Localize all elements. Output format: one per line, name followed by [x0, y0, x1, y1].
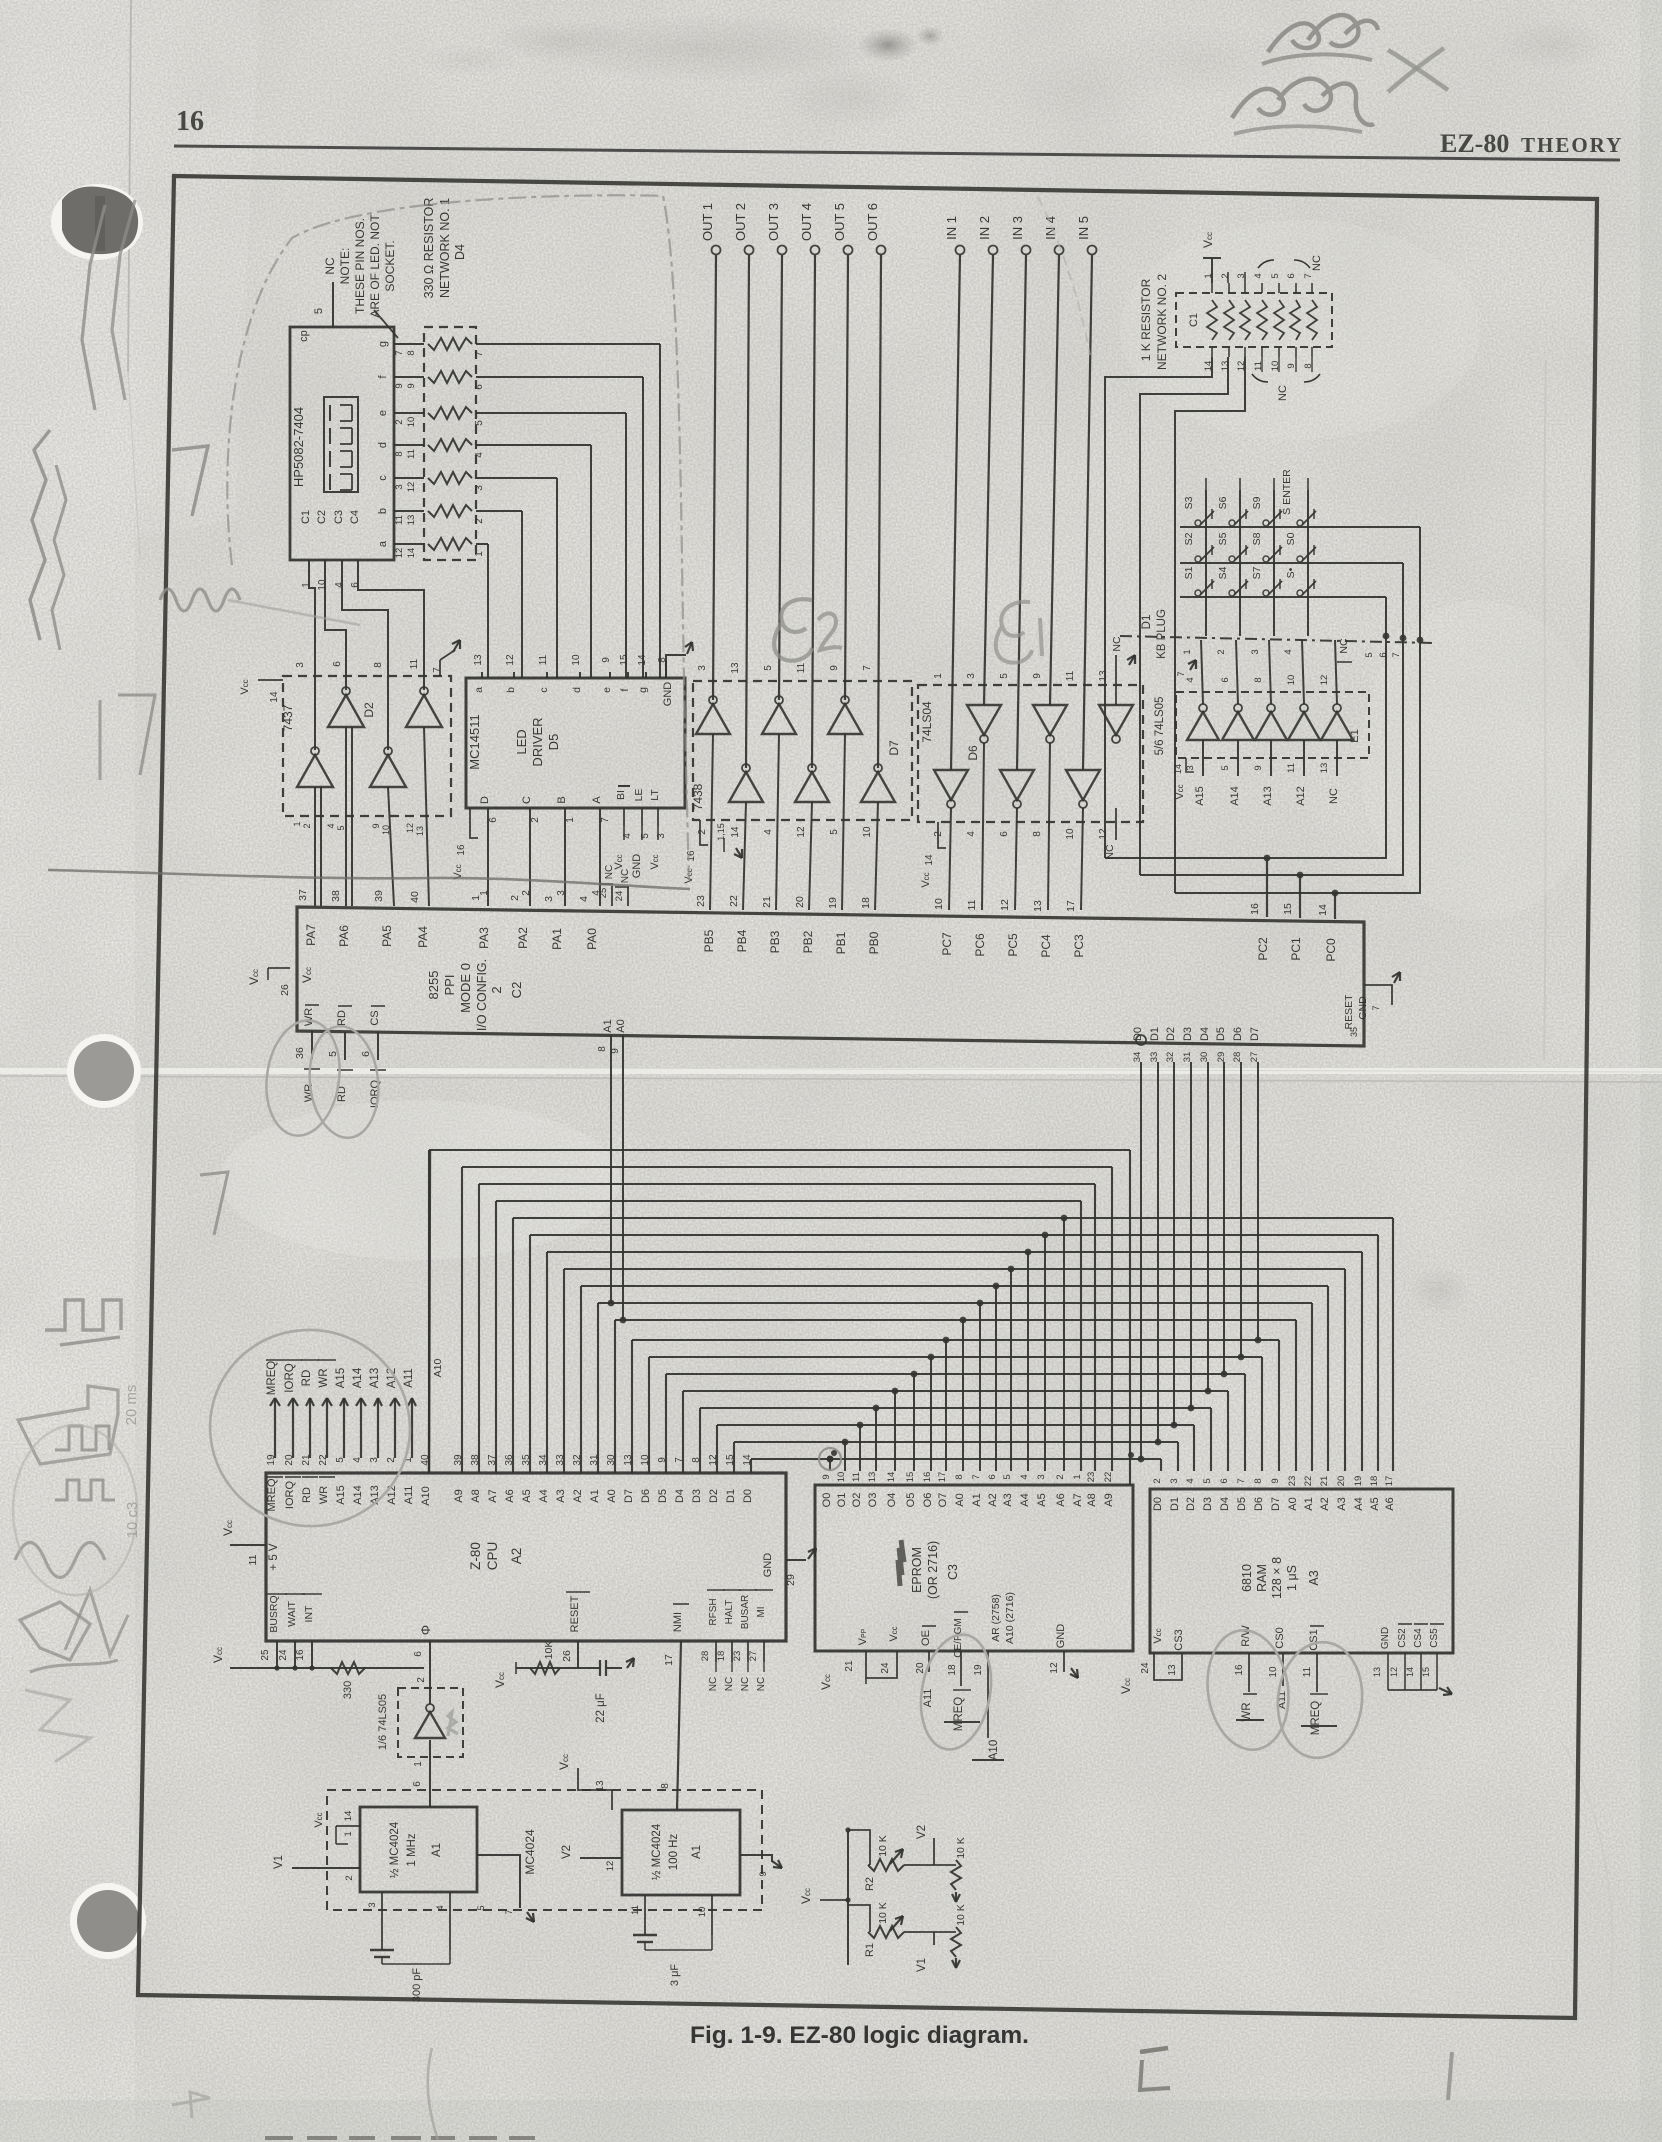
svg-text:13: 13 — [595, 1780, 606, 1792]
svg-text:A0: A0 — [1287, 1497, 1299, 1510]
svg-text:28: 28 — [700, 1651, 711, 1662]
svg-text:D0: D0 — [1132, 1027, 1144, 1041]
svg-text:11: 11 — [630, 1905, 641, 1915]
svg-text:D5: D5 — [657, 1489, 669, 1503]
svg-text:A8: A8 — [1086, 1493, 1098, 1506]
svg-text:OUT 2: OUT 2 — [733, 203, 748, 241]
svg-text:b: b — [377, 508, 389, 514]
svg-text:1 K RESISTOR: 1 K RESISTOR — [1139, 278, 1153, 361]
svg-text:OUT 5: OUT 5 — [832, 203, 847, 241]
svg-text:OUT 4: OUT 4 — [799, 203, 814, 241]
svg-text:O3: O3 — [867, 1493, 879, 1508]
svg-text:CS0: CS0 — [1274, 1627, 1286, 1648]
svg-text:7: 7 — [1236, 1478, 1247, 1483]
svg-text:2: 2 — [1152, 1478, 1163, 1483]
svg-text:NC: NC — [604, 865, 615, 879]
svg-text:16: 16 — [295, 1649, 306, 1661]
svg-text:14: 14 — [343, 1811, 354, 1822]
svg-text:MC4024: MC4024 — [523, 1829, 537, 1875]
svg-text:S6: S6 — [1217, 496, 1229, 509]
svg-text:A0: A0 — [954, 1493, 966, 1506]
svg-text:5: 5 — [1202, 1478, 1213, 1483]
svg-text:PB2: PB2 — [801, 930, 815, 953]
svg-text:A9: A9 — [1103, 1493, 1115, 1506]
svg-text:A15: A15 — [335, 1485, 347, 1505]
svg-text:330 Ω RESISTOR: 330 Ω RESISTOR — [422, 198, 436, 299]
svg-text:Vcc: Vcc — [239, 679, 251, 694]
svg-text:S8: S8 — [1251, 532, 1263, 545]
svg-text:10 K: 10 K — [955, 1904, 967, 1926]
svg-text:SOCKET.: SOCKET. — [383, 240, 397, 291]
svg-text:15: 15 — [1282, 903, 1294, 915]
svg-text:IN 5: IN 5 — [1076, 216, 1091, 240]
svg-text:GND: GND — [1357, 996, 1369, 1020]
svg-text:BUSAR: BUSAR — [740, 1595, 751, 1629]
svg-text:PPI: PPI — [442, 975, 457, 996]
svg-text:14: 14 — [1173, 764, 1183, 774]
svg-text:O5: O5 — [905, 1493, 917, 1508]
svg-text:NETWORK NO. 1: NETWORK NO. 1 — [438, 198, 452, 298]
svg-text:A5: A5 — [1036, 1493, 1048, 1506]
svg-text:10: 10 — [406, 417, 417, 428]
svg-text:C1: C1 — [300, 510, 312, 524]
svg-text:D5: D5 — [1236, 1497, 1248, 1511]
svg-text:5: 5 — [476, 1905, 487, 1910]
svg-text:11: 11 — [409, 658, 420, 669]
svg-text:A14: A14 — [352, 1485, 364, 1505]
svg-text:O4: O4 — [886, 1493, 898, 1508]
svg-text:D: D — [479, 796, 491, 804]
svg-text:9: 9 — [601, 657, 612, 663]
svg-text:PA6: PA6 — [337, 925, 351, 947]
svg-text:6: 6 — [412, 1781, 423, 1787]
svg-text:A2: A2 — [1319, 1497, 1331, 1510]
svg-text:WR: WR — [1241, 1702, 1253, 1721]
svg-text:5/6 74LS05: 5/6 74LS05 — [1154, 697, 1166, 756]
svg-text:22 μF: 22 μF — [595, 1693, 607, 1723]
svg-text:18: 18 — [1369, 1476, 1380, 1487]
svg-text:6: 6 — [1286, 273, 1297, 278]
svg-text:11: 11 — [394, 515, 405, 525]
svg-text:PA5: PA5 — [380, 925, 394, 947]
svg-text:C2: C2 — [509, 982, 524, 999]
svg-text:19: 19 — [1353, 1476, 1364, 1487]
svg-text:8: 8 — [1032, 831, 1043, 837]
svg-text:S ENTER: S ENTER — [1281, 469, 1293, 515]
svg-text:12: 12 — [406, 482, 417, 493]
svg-text:Fig. 1-9. EZ-80 logic diagram.: Fig. 1-9. EZ-80 logic diagram. — [690, 2022, 1029, 2049]
svg-text:A1: A1 — [589, 1489, 601, 1502]
svg-text:7: 7 — [971, 1474, 982, 1479]
svg-text:C4: C4 — [349, 510, 361, 524]
svg-text:GND: GND — [1055, 1624, 1067, 1649]
svg-text:22: 22 — [1103, 1472, 1114, 1483]
svg-text:22: 22 — [1303, 1476, 1314, 1487]
svg-text:A3: A3 — [1002, 1493, 1014, 1506]
svg-text:16: 16 — [456, 844, 467, 856]
svg-text:9: 9 — [1032, 673, 1043, 679]
svg-text:RD: RD — [301, 1370, 313, 1387]
svg-text:4: 4 — [1185, 677, 1196, 682]
svg-text:D3: D3 — [1182, 1027, 1194, 1041]
svg-text:1: 1 — [933, 673, 944, 679]
svg-text:2: 2 — [521, 890, 532, 896]
svg-text:B: B — [556, 796, 568, 803]
svg-text:GND: GND — [631, 854, 643, 879]
svg-text:5: 5 — [763, 665, 774, 671]
svg-text:1: 1 — [474, 551, 485, 557]
svg-text:D2: D2 — [362, 702, 376, 718]
svg-text:16: 16 — [1234, 1664, 1245, 1676]
svg-text:PB3: PB3 — [768, 930, 782, 953]
svg-text:D2: D2 — [708, 1489, 720, 1503]
svg-text:10: 10 — [1268, 1666, 1279, 1678]
svg-text:6: 6 — [474, 384, 485, 390]
svg-text:7: 7 — [394, 350, 405, 355]
svg-text:5: 5 — [1002, 1474, 1013, 1479]
svg-text:8: 8 — [660, 1783, 671, 1789]
svg-text:10: 10 — [697, 1907, 708, 1918]
svg-text:13: 13 — [730, 662, 741, 674]
svg-text:NC: NC — [740, 1677, 751, 1691]
svg-text:PC4: PC4 — [1039, 934, 1053, 958]
svg-text:Vcc: Vcc — [920, 872, 932, 887]
svg-text:O2: O2 — [851, 1493, 863, 1508]
svg-text:3: 3 — [556, 890, 567, 896]
svg-text:10 K: 10 K — [877, 1835, 889, 1857]
svg-text:A1: A1 — [1303, 1497, 1315, 1510]
svg-text:7: 7 — [432, 667, 443, 673]
svg-text:18: 18 — [947, 1664, 958, 1676]
svg-text:A10: A10 — [432, 1359, 444, 1378]
svg-text:4: 4 — [1019, 1474, 1030, 1479]
svg-text:10 K: 10 K — [877, 1902, 889, 1924]
svg-text:KB PLUG: KB PLUG — [1156, 609, 1168, 659]
svg-text:21: 21 — [1319, 1476, 1330, 1487]
svg-text:12: 12 — [1319, 675, 1330, 686]
svg-text:D4: D4 — [453, 244, 467, 260]
svg-text:A10: A10 — [988, 1740, 1000, 1760]
svg-text:32: 32 — [1165, 1052, 1176, 1063]
svg-text:18: 18 — [860, 897, 872, 909]
svg-text:NC: NC — [620, 869, 631, 883]
svg-text:20: 20 — [915, 1662, 926, 1674]
svg-text:A0: A0 — [606, 1489, 618, 1502]
svg-text:IORQ: IORQ — [284, 1481, 296, 1510]
svg-text:5: 5 — [1270, 273, 1281, 278]
svg-text:23: 23 — [1287, 1476, 1298, 1487]
svg-text:CS2: CS2 — [1397, 1628, 1408, 1648]
svg-text:CS1: CS1 — [1308, 1629, 1320, 1650]
svg-text:PA2: PA2 — [516, 927, 530, 949]
svg-text:S1: S1 — [1183, 566, 1195, 579]
svg-text:OUT 6: OUT 6 — [865, 203, 880, 241]
svg-text:D1: D1 — [1149, 1027, 1161, 1041]
svg-text:74LS04: 74LS04 — [920, 701, 934, 743]
svg-text:PC6: PC6 — [973, 933, 987, 957]
svg-text:4: 4 — [1283, 649, 1294, 654]
svg-text:A1: A1 — [691, 1845, 703, 1859]
svg-text:A4: A4 — [1353, 1497, 1365, 1510]
svg-text:c: c — [538, 687, 550, 692]
svg-text:IN 4: IN 4 — [1043, 216, 1058, 240]
svg-text:C1: C1 — [1188, 313, 1200, 327]
svg-text:S0: S0 — [1285, 532, 1297, 545]
svg-text:PB4: PB4 — [735, 929, 749, 952]
svg-text:10K: 10K — [543, 1641, 555, 1660]
svg-text:39: 39 — [373, 890, 385, 902]
svg-text:36: 36 — [294, 1047, 306, 1059]
svg-text:THEORY: THEORY — [1521, 133, 1623, 157]
svg-text:2: 2 — [302, 823, 312, 828]
svg-text:PC7: PC7 — [940, 932, 954, 956]
svg-text:12: 12 — [1049, 1662, 1060, 1674]
svg-text:11: 11 — [851, 1472, 862, 1482]
svg-text:D5: D5 — [1215, 1027, 1227, 1041]
svg-text:PC2: PC2 — [1256, 937, 1270, 961]
svg-text:17: 17 — [663, 1654, 675, 1666]
svg-text:4: 4 — [966, 831, 977, 837]
svg-text:f: f — [619, 688, 631, 691]
svg-text:2: 2 — [509, 895, 521, 901]
svg-text:NMI: NMI — [672, 1612, 684, 1632]
svg-text:2: 2 — [1216, 649, 1227, 654]
svg-text:29: 29 — [785, 1574, 797, 1586]
svg-text:5: 5 — [999, 673, 1010, 679]
svg-text:O7: O7 — [937, 1493, 949, 1508]
svg-text:HALT: HALT — [724, 1600, 735, 1625]
svg-text:A2: A2 — [509, 1548, 524, 1565]
svg-text:15: 15 — [905, 1472, 916, 1483]
svg-text:3: 3 — [367, 1902, 378, 1907]
svg-text:IN 2: IN 2 — [977, 216, 992, 240]
svg-text:4: 4 — [763, 829, 774, 835]
svg-text:5: 5 — [1364, 652, 1375, 657]
svg-text:13: 13 — [1319, 763, 1330, 774]
svg-text:A3: A3 — [555, 1489, 567, 1502]
svg-text:I/O CONFIG.: I/O CONFIG. — [475, 959, 489, 1031]
svg-text:CPU: CPU — [485, 1542, 500, 1571]
svg-text:A10: A10 — [420, 1486, 432, 1506]
svg-text:D4: D4 — [1219, 1497, 1231, 1511]
svg-text:6: 6 — [350, 582, 361, 588]
svg-text:D6: D6 — [1232, 1027, 1244, 1041]
svg-text:CS5: CS5 — [1429, 1628, 1440, 1648]
svg-text:MREQ: MREQ — [266, 1361, 278, 1396]
svg-text:LE: LE — [633, 789, 645, 802]
svg-text:21: 21 — [761, 896, 773, 908]
svg-text:10: 10 — [836, 1472, 847, 1483]
svg-text:D1: D1 — [1141, 615, 1153, 630]
svg-text:A3: A3 — [1336, 1497, 1348, 1510]
svg-text:300 pF: 300 pF — [411, 1968, 423, 2003]
svg-text:OE: OE — [920, 1630, 932, 1646]
svg-text:8: 8 — [373, 662, 384, 668]
svg-text:S5: S5 — [1217, 532, 1229, 545]
svg-text:2: 2 — [474, 518, 485, 524]
svg-text:18: 18 — [716, 1651, 727, 1662]
svg-text:12: 12 — [1098, 828, 1109, 840]
svg-text:10 K: 10 K — [955, 1837, 967, 1859]
svg-text:31: 31 — [1182, 1052, 1193, 1063]
svg-text:WR: WR — [303, 1008, 315, 1026]
svg-text:RFSH: RFSH — [708, 1598, 719, 1625]
svg-text:DRIVER: DRIVER — [530, 717, 545, 766]
svg-text:26: 26 — [279, 984, 291, 996]
svg-text:4: 4 — [474, 452, 485, 458]
svg-text:9: 9 — [829, 665, 840, 671]
svg-text:HP5082-7404: HP5082-7404 — [291, 407, 306, 487]
svg-text:A5: A5 — [521, 1489, 533, 1502]
svg-text:16: 16 — [922, 1472, 933, 1483]
svg-text:A2: A2 — [987, 1493, 999, 1506]
svg-text:A15: A15 — [1194, 786, 1206, 806]
svg-text:10 c3: 10 c3 — [124, 1502, 141, 1539]
svg-text:20: 20 — [794, 896, 806, 908]
svg-text:A6: A6 — [1055, 1493, 1067, 1506]
svg-text:13: 13 — [406, 515, 417, 526]
svg-text:a: a — [473, 687, 485, 693]
svg-text:WAIT: WAIT — [286, 1600, 298, 1626]
svg-text:D7: D7 — [1249, 1027, 1261, 1041]
svg-text:OUT 1: OUT 1 — [700, 203, 715, 241]
svg-text:A5: A5 — [1369, 1497, 1381, 1510]
svg-text:8: 8 — [954, 1474, 965, 1479]
svg-text:1: 1 — [413, 1761, 424, 1767]
svg-text:10: 10 — [1286, 675, 1297, 686]
svg-text:25: 25 — [598, 888, 609, 899]
svg-text:13: 13 — [473, 654, 484, 666]
svg-text:a: a — [377, 540, 389, 547]
svg-text:S9: S9 — [1251, 496, 1263, 509]
svg-text:14: 14 — [269, 691, 280, 703]
svg-text:d: d — [377, 442, 389, 448]
svg-text:WR: WR — [318, 1368, 330, 1387]
svg-text:15: 15 — [619, 654, 630, 666]
svg-text:S•: S• — [1285, 567, 1297, 578]
svg-text:NC: NC — [1111, 636, 1123, 652]
svg-text:D2: D2 — [1165, 1027, 1177, 1041]
svg-text:24: 24 — [880, 1662, 891, 1674]
svg-text:12: 12 — [605, 1861, 616, 1872]
svg-text:15: 15 — [1421, 1667, 1431, 1677]
svg-text:V1: V1 — [273, 1855, 285, 1869]
svg-text:24: 24 — [614, 891, 625, 902]
svg-text:4: 4 — [326, 823, 336, 828]
svg-text:PA0: PA0 — [585, 928, 599, 950]
svg-text:CS3: CS3 — [1173, 1629, 1185, 1650]
svg-text:330: 330 — [342, 1681, 354, 1699]
svg-text:3: 3 — [966, 673, 977, 679]
svg-text:8: 8 — [597, 1046, 608, 1052]
svg-text:1: 1 — [470, 895, 482, 901]
svg-text:RD: RD — [336, 1010, 348, 1026]
svg-text:30: 30 — [1199, 1052, 1210, 1063]
svg-text:MREQ: MREQ — [1310, 1701, 1322, 1736]
svg-text:9: 9 — [371, 823, 381, 828]
svg-text:MREQ: MREQ — [266, 1478, 278, 1511]
svg-text:14: 14 — [1405, 1667, 1415, 1677]
svg-text:10: 10 — [862, 826, 873, 838]
svg-text:5: 5 — [336, 825, 346, 830]
svg-text:S3: S3 — [1183, 496, 1195, 509]
svg-text:4: 4 — [1253, 273, 1264, 278]
svg-text:17: 17 — [937, 1472, 948, 1483]
svg-text:A1: A1 — [431, 1843, 443, 1857]
svg-text:AR (2758): AR (2758) — [990, 1594, 1002, 1642]
svg-text:PC5: PC5 — [1006, 933, 1020, 957]
svg-text:8: 8 — [406, 350, 417, 355]
svg-text:7: 7 — [1176, 671, 1186, 676]
svg-text:38: 38 — [330, 890, 342, 902]
svg-text:11: 11 — [1302, 1666, 1313, 1677]
svg-text:CS: CS — [369, 1010, 381, 1025]
svg-text:PB1: PB1 — [834, 931, 848, 954]
svg-text:7: 7 — [862, 665, 873, 671]
svg-text:40: 40 — [409, 891, 421, 903]
svg-text:D5: D5 — [546, 734, 561, 751]
svg-text:D2: D2 — [1185, 1497, 1197, 1511]
svg-text:9: 9 — [406, 383, 417, 388]
svg-text:A7: A7 — [1072, 1493, 1084, 1506]
svg-text:V1: V1 — [916, 1958, 928, 1972]
svg-text:A13: A13 — [1262, 786, 1274, 806]
svg-text:3: 3 — [1169, 1478, 1180, 1483]
svg-text:OUT 3: OUT 3 — [766, 203, 781, 241]
svg-text:Φ: Φ — [418, 1625, 433, 1635]
svg-text:NC: NC — [323, 257, 337, 275]
svg-text:e: e — [601, 687, 613, 693]
svg-text:20: 20 — [1336, 1476, 1347, 1487]
svg-text:12: 12 — [1389, 1667, 1399, 1677]
svg-text:13: 13 — [415, 826, 425, 836]
svg-text:D7: D7 — [887, 740, 901, 756]
svg-text:2: 2 — [344, 1875, 355, 1880]
svg-text:D6: D6 — [966, 745, 980, 761]
svg-text:g: g — [637, 687, 649, 693]
svg-text:NC: NC — [1277, 385, 1289, 401]
svg-text:1: 1 — [343, 1831, 354, 1836]
svg-text:PA4: PA4 — [416, 926, 430, 948]
svg-text:128 × 8: 128 × 8 — [1270, 1557, 1284, 1599]
svg-text:1 μS: 1 μS — [1285, 1565, 1299, 1591]
svg-text:5: 5 — [313, 308, 325, 314]
svg-text:Vcc: Vcc — [888, 1626, 900, 1641]
svg-text:A1: A1 — [971, 1493, 983, 1506]
svg-text:A7: A7 — [487, 1489, 499, 1502]
svg-text:24: 24 — [278, 1649, 289, 1661]
svg-text:D4: D4 — [674, 1489, 686, 1503]
svg-text:A2: A2 — [572, 1489, 584, 1502]
svg-text:NC: NC — [1328, 788, 1340, 804]
svg-text:A14: A14 — [1229, 786, 1241, 806]
svg-text:cp: cp — [298, 330, 310, 342]
svg-text:LED: LED — [514, 729, 529, 754]
svg-text:21: 21 — [844, 1660, 855, 1672]
svg-text:1: 1 — [1182, 649, 1193, 654]
svg-text:CE/PGM: CE/PGM — [953, 1618, 964, 1657]
svg-text:d: d — [571, 687, 583, 693]
svg-text:RESET: RESET — [1343, 994, 1355, 1030]
svg-text:13: 13 — [1372, 1667, 1382, 1677]
svg-text:5: 5 — [474, 420, 485, 426]
svg-text:C3: C3 — [946, 1564, 960, 1580]
svg-text:LT: LT — [649, 789, 661, 801]
svg-text:11: 11 — [247, 1554, 259, 1565]
svg-text:PC3: PC3 — [1072, 934, 1086, 958]
svg-text:14: 14 — [886, 1472, 897, 1483]
svg-text:9: 9 — [1253, 765, 1264, 770]
